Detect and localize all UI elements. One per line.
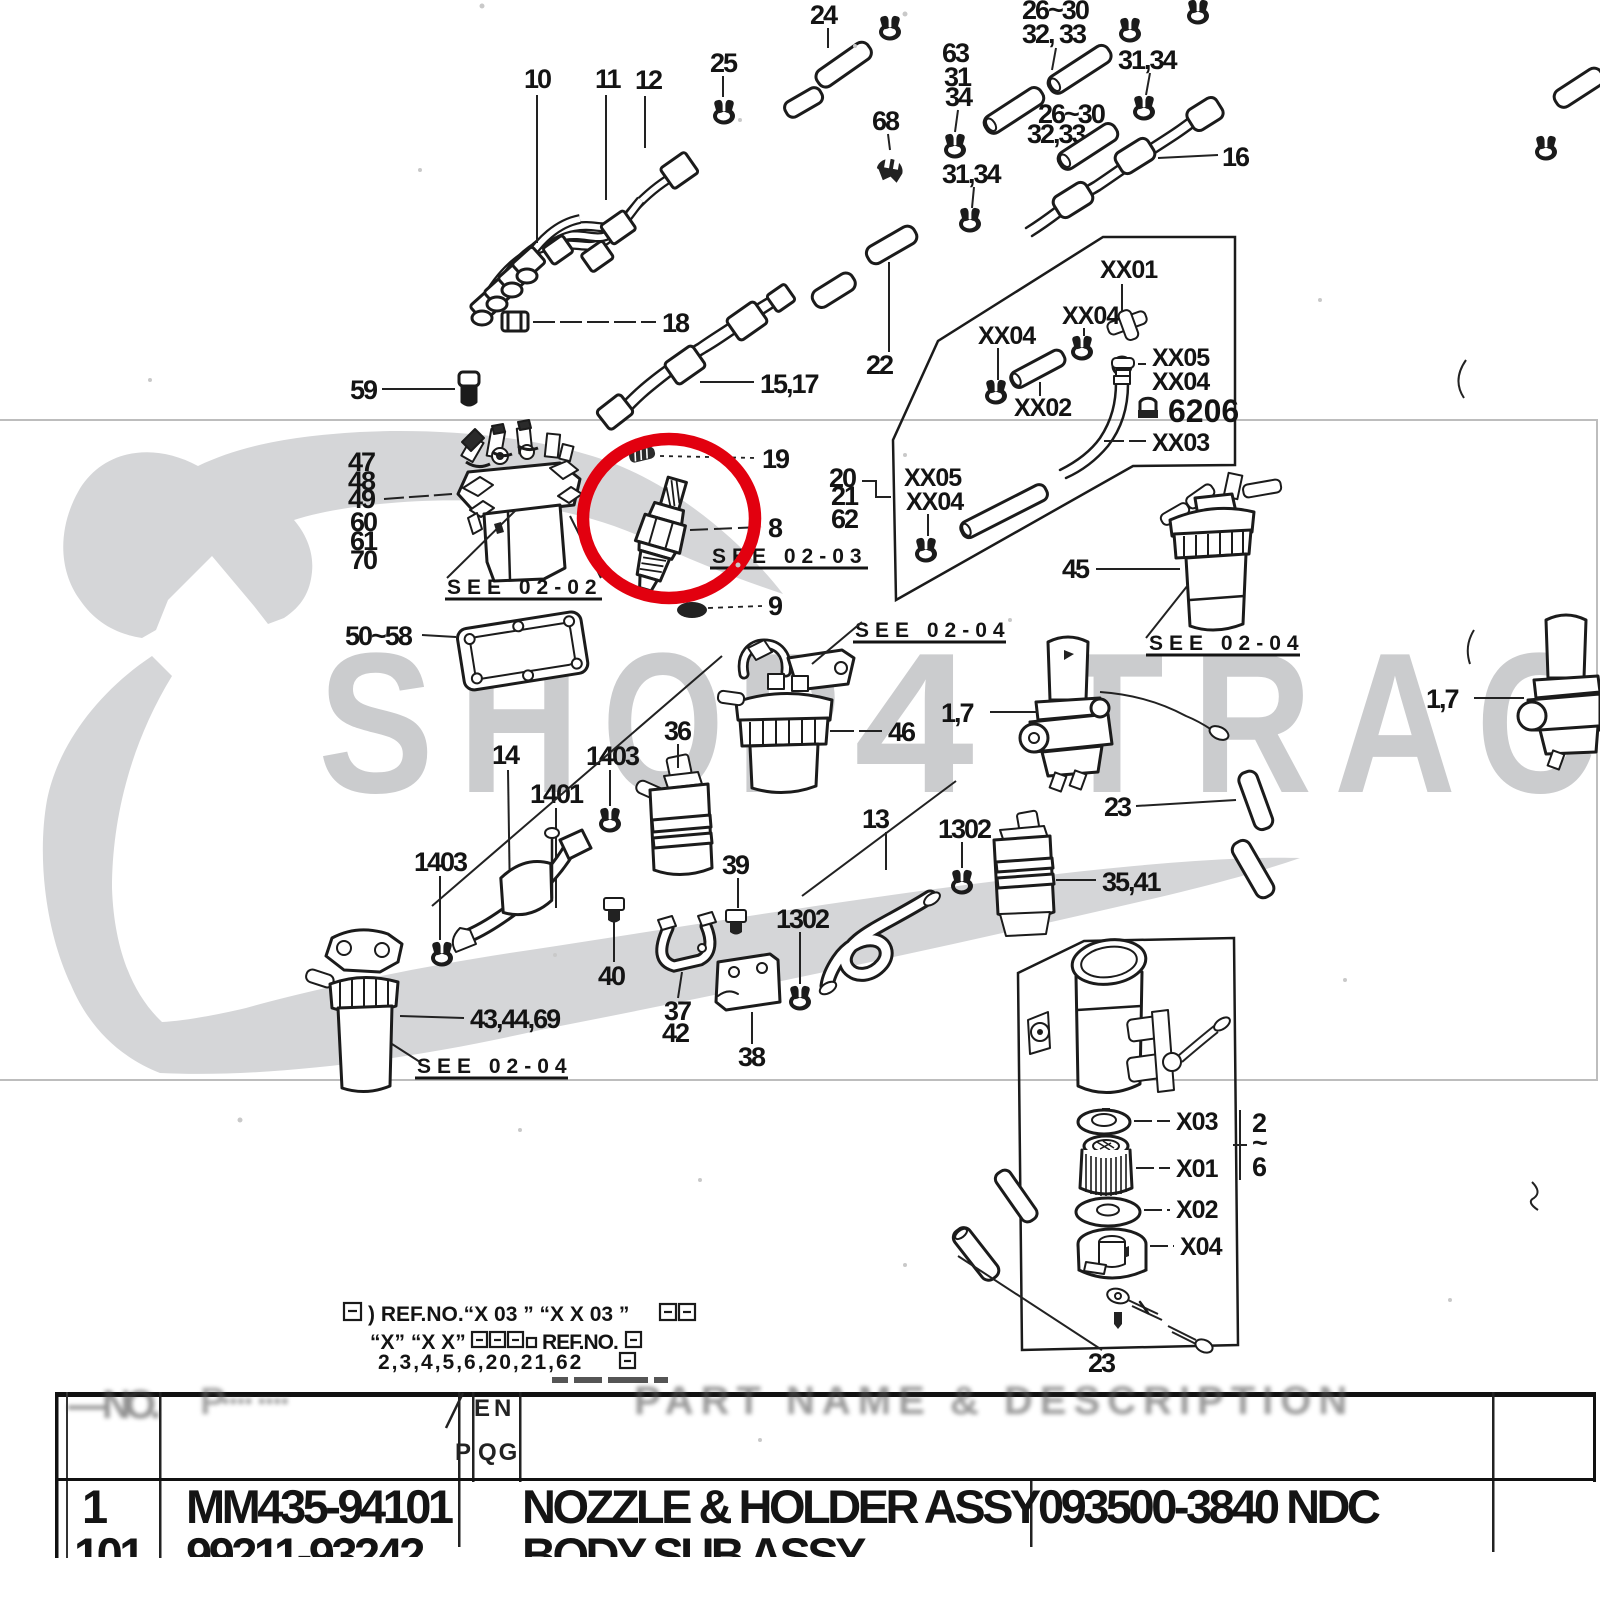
svg-text:X03: X03 — [1176, 1108, 1218, 1136]
svg-text:42: 42 — [662, 1018, 689, 1048]
svg-text:SEE 02-04: SEE 02-04 — [417, 1055, 573, 1078]
svg-text:40: 40 — [598, 961, 625, 991]
svg-text:X01: X01 — [1176, 1155, 1219, 1183]
svg-text:P···· ····: P···· ···· — [200, 1381, 287, 1423]
svg-text:P: P — [455, 1439, 473, 1466]
svg-text:XX04: XX04 — [1152, 368, 1210, 396]
svg-text:68: 68 — [872, 106, 900, 136]
svg-text:1302: 1302 — [938, 814, 991, 844]
svg-text:NOZZLE & HOLDER ASSY: NOZZLE & HOLDER ASSY — [522, 1480, 1041, 1533]
svg-text:XX04: XX04 — [978, 322, 1036, 350]
svg-text:X02: X02 — [1176, 1196, 1218, 1224]
svg-text:XX02: XX02 — [1014, 394, 1071, 422]
svg-text:38: 38 — [738, 1042, 766, 1072]
svg-text:36: 36 — [664, 716, 692, 746]
svg-text:MM435-94101: MM435-94101 — [186, 1480, 453, 1533]
svg-text:31,34: 31,34 — [942, 159, 1002, 189]
svg-text:093500-3840 NDC: 093500-3840 NDC — [1038, 1480, 1380, 1533]
svg-text:XX04: XX04 — [906, 488, 964, 516]
svg-text:SEE 02-04: SEE 02-04 — [1149, 632, 1305, 655]
svg-text:) REF.NO.“X 03 ” “X X 03 ”: ) REF.NO.“X 03 ” “X X 03 ” — [368, 1303, 629, 1326]
svg-text:1302: 1302 — [776, 904, 829, 934]
svg-text:46: 46 — [888, 717, 916, 747]
svg-text:SEE 02-04: SEE 02-04 — [855, 619, 1011, 642]
svg-text:34: 34 — [945, 82, 973, 112]
svg-text:18: 18 — [662, 308, 690, 338]
svg-text:22: 22 — [866, 350, 893, 380]
svg-text:2,3,4,5,6,20,21,62: 2,3,4,5,6,20,21,62 — [378, 1351, 583, 1374]
svg-text:16: 16 — [1222, 142, 1250, 172]
svg-text:45: 45 — [1062, 554, 1090, 584]
svg-text:1403: 1403 — [414, 847, 468, 877]
svg-text:62: 62 — [831, 504, 858, 534]
svg-text:SEE 02-02: SEE 02-02 — [447, 576, 603, 599]
svg-text:23: 23 — [1088, 1348, 1116, 1378]
svg-text:XX04: XX04 — [1062, 302, 1120, 330]
svg-text:1: 1 — [82, 1480, 107, 1533]
svg-text:11: 11 — [595, 64, 622, 94]
svg-text:A: A — [1334, 612, 1456, 835]
svg-text:XX03: XX03 — [1152, 429, 1209, 457]
svg-text:50~58: 50~58 — [345, 621, 413, 651]
svg-text:PART NAME & DESCRIPTION: PART NAME & DESCRIPTION — [634, 1379, 1354, 1423]
svg-text:6: 6 — [1252, 1152, 1267, 1182]
svg-text:XX01: XX01 — [1100, 256, 1158, 284]
svg-text:10: 10 — [524, 64, 551, 94]
svg-text:1,7: 1,7 — [941, 698, 974, 728]
svg-text:32, 33: 32, 33 — [1022, 19, 1087, 49]
svg-text:39: 39 — [722, 850, 750, 880]
svg-text:19: 19 — [762, 444, 790, 474]
svg-text:X04: X04 — [1180, 1233, 1223, 1261]
svg-text:23: 23 — [1104, 792, 1132, 822]
svg-text:24: 24 — [810, 0, 838, 30]
svg-text:6206: 6206 — [1168, 393, 1239, 429]
svg-text:12: 12 — [635, 65, 662, 95]
svg-text:43,44,69: 43,44,69 — [470, 1004, 561, 1034]
svg-text:25: 25 — [710, 48, 738, 78]
svg-text:—NO.: —NO. — [68, 1383, 159, 1427]
svg-text:1,7: 1,7 — [1426, 684, 1459, 714]
svg-text:35,41: 35,41 — [1102, 867, 1162, 897]
svg-text:QG: QG — [478, 1439, 519, 1466]
svg-text:8: 8 — [768, 513, 783, 543]
svg-text:70: 70 — [350, 545, 377, 575]
svg-text:1401: 1401 — [530, 779, 584, 809]
svg-text:59: 59 — [350, 375, 378, 405]
svg-text:14: 14 — [492, 740, 520, 770]
svg-text:9: 9 — [768, 591, 783, 621]
svg-text:EN: EN — [474, 1395, 515, 1422]
svg-text:15,17: 15,17 — [760, 369, 819, 399]
svg-text:31,34: 31,34 — [1118, 45, 1178, 75]
svg-text:13: 13 — [862, 804, 890, 834]
